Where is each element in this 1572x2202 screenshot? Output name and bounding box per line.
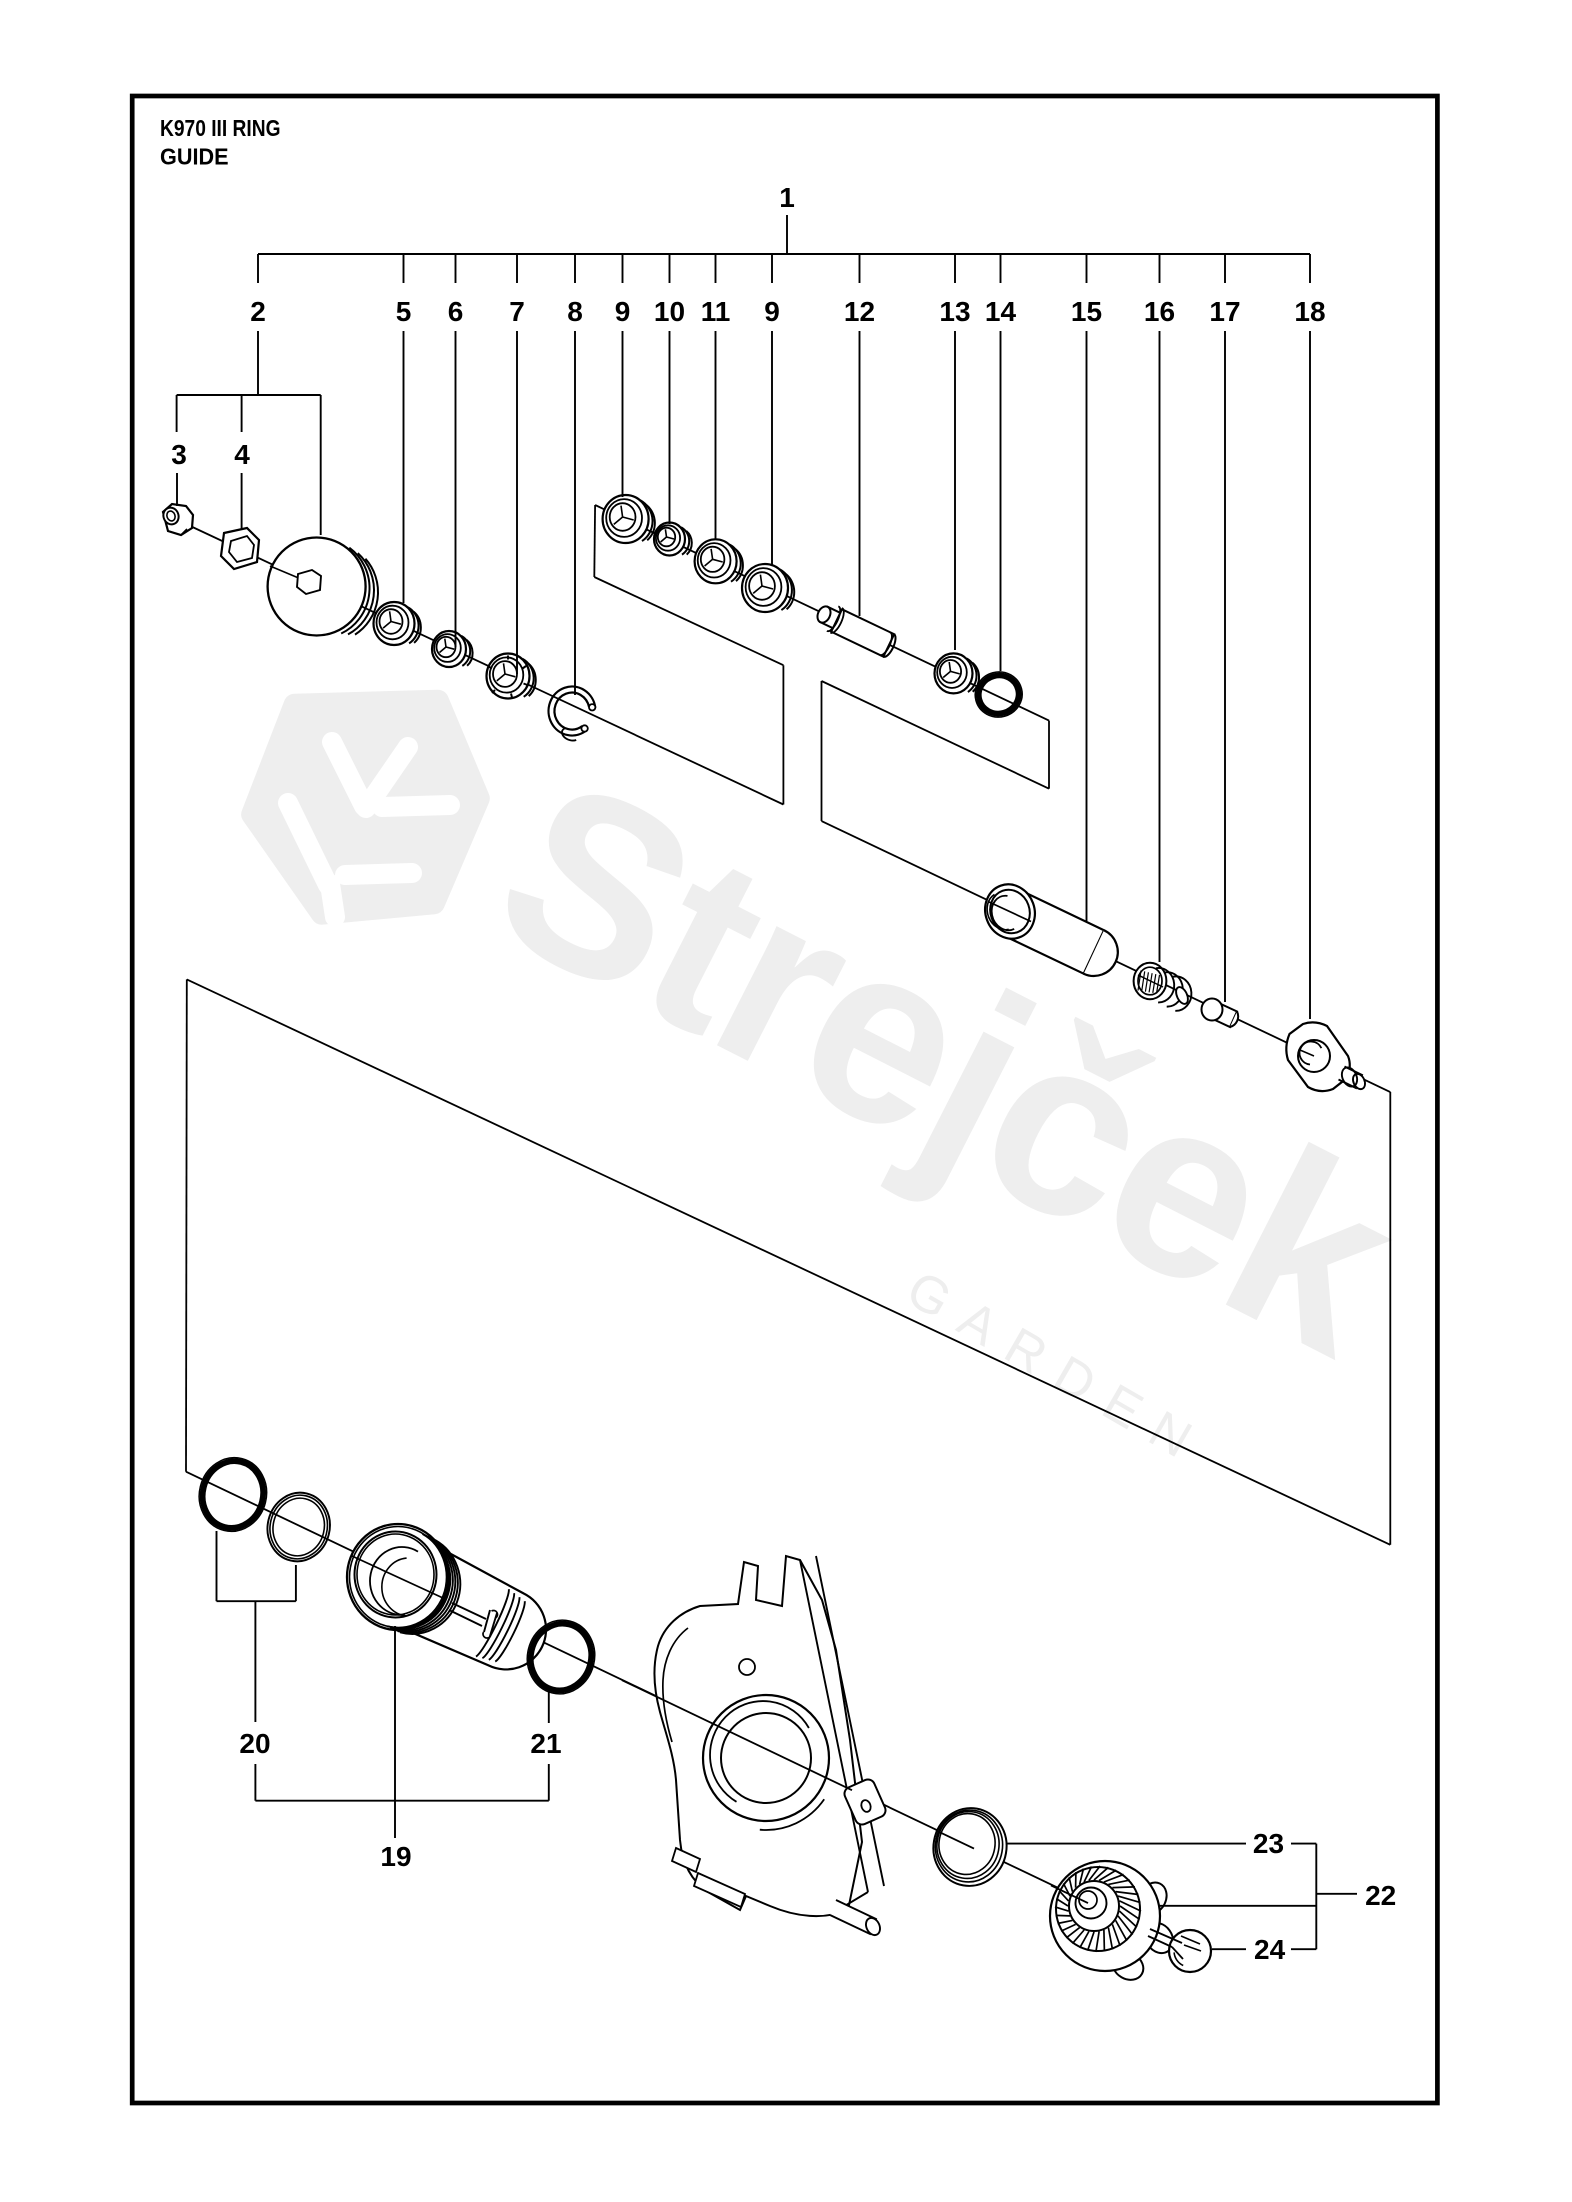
svg-text:22: 22 — [1365, 1880, 1396, 1911]
svg-text:15: 15 — [1071, 296, 1102, 327]
svg-text:GUIDE: GUIDE — [160, 144, 229, 170]
svg-text:3: 3 — [171, 439, 187, 470]
svg-text:18: 18 — [1294, 296, 1325, 327]
svg-text:11: 11 — [701, 296, 731, 327]
svg-text:12: 12 — [844, 296, 875, 327]
svg-text:7: 7 — [509, 296, 525, 327]
svg-text:9: 9 — [615, 296, 631, 327]
svg-text:16: 16 — [1144, 296, 1175, 327]
svg-text:23: 23 — [1253, 1828, 1284, 1859]
svg-text:2: 2 — [250, 296, 266, 327]
svg-text:20: 20 — [239, 1728, 270, 1759]
svg-text:17: 17 — [1209, 296, 1240, 327]
svg-text:1: 1 — [779, 182, 795, 213]
svg-text:19: 19 — [380, 1841, 411, 1872]
svg-text:9: 9 — [764, 296, 780, 327]
svg-text:K970 III RING: K970 III RING — [160, 115, 281, 141]
svg-text:6: 6 — [448, 296, 464, 327]
svg-text:5: 5 — [396, 296, 412, 327]
svg-text:21: 21 — [530, 1728, 561, 1759]
svg-text:13: 13 — [939, 296, 970, 327]
svg-text:4: 4 — [234, 439, 250, 470]
svg-text:10: 10 — [654, 296, 685, 327]
svg-text:14: 14 — [985, 296, 1017, 327]
svg-text:24: 24 — [1254, 1934, 1286, 1965]
svg-text:8: 8 — [567, 296, 583, 327]
